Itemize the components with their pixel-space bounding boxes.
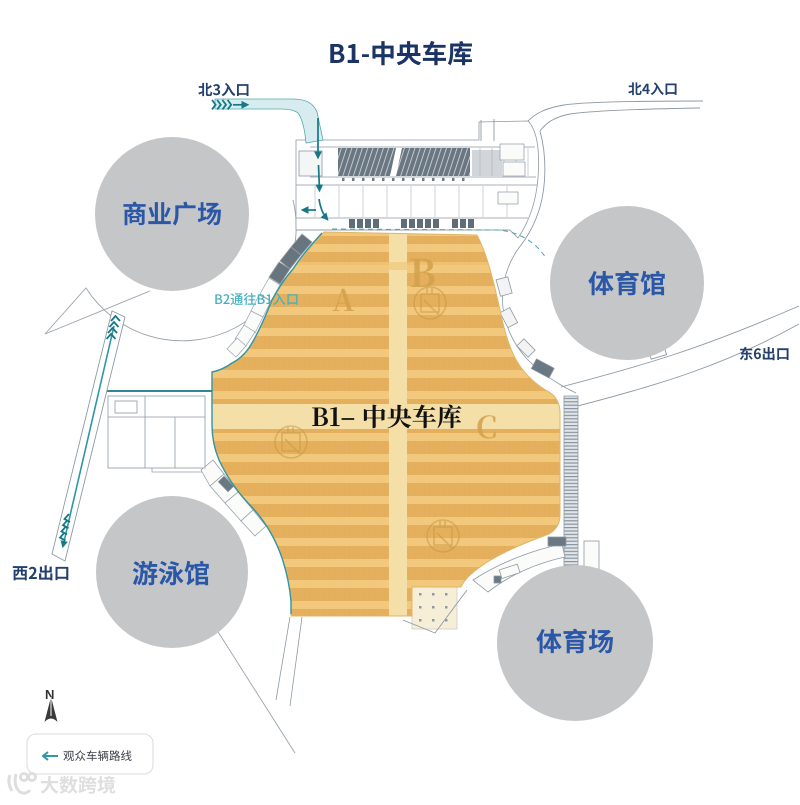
svg-text:N: N	[45, 687, 54, 702]
